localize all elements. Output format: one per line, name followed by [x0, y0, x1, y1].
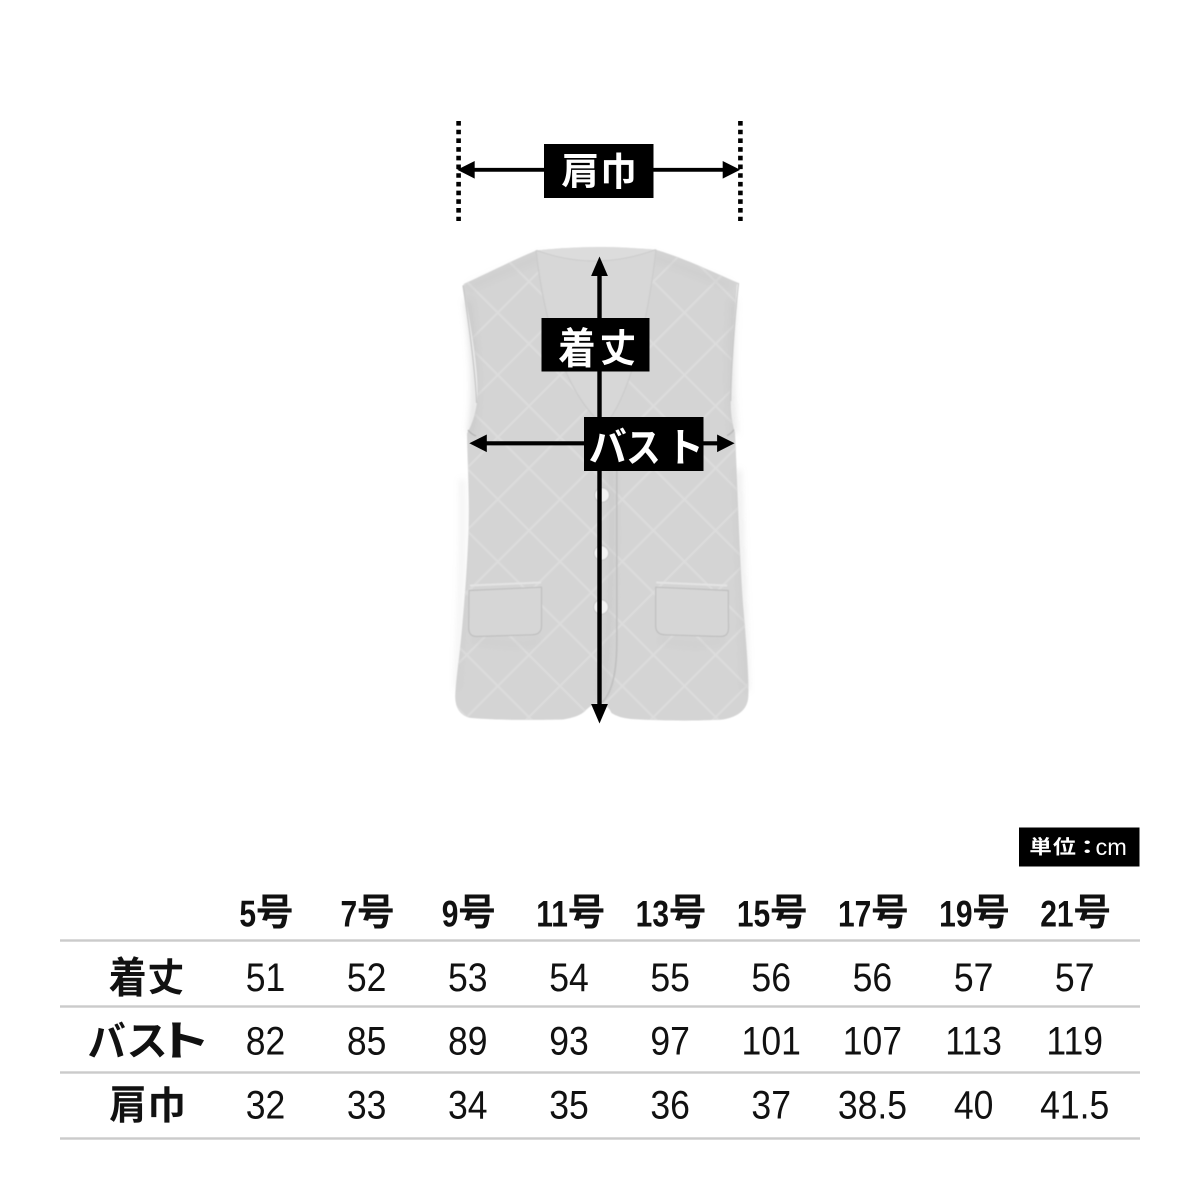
svg-text:15: 15: [737, 893, 770, 935]
svg-text:82: 82: [246, 1019, 286, 1063]
svg-text:54: 54: [549, 955, 589, 999]
svg-text:55: 55: [650, 955, 690, 999]
svg-text:119: 119: [1046, 1019, 1103, 1063]
svg-text:19: 19: [939, 893, 972, 935]
svg-text:107: 107: [843, 1019, 902, 1063]
svg-text:5: 5: [239, 893, 256, 935]
svg-text:113: 113: [945, 1019, 1002, 1063]
svg-text:35: 35: [549, 1083, 589, 1127]
svg-text:40: 40: [954, 1083, 994, 1127]
svg-text:9: 9: [442, 893, 459, 935]
svg-text:51: 51: [246, 955, 286, 999]
svg-text:85: 85: [347, 1019, 387, 1063]
svg-text:53: 53: [448, 955, 488, 999]
svg-text:52: 52: [347, 955, 387, 999]
svg-text:32: 32: [246, 1083, 286, 1127]
svg-text:11: 11: [536, 893, 568, 935]
svg-text:34: 34: [448, 1083, 488, 1127]
svg-text:41.5: 41.5: [1040, 1083, 1109, 1127]
svg-text:97: 97: [650, 1019, 690, 1063]
svg-text:cm: cm: [1096, 834, 1127, 860]
svg-text:57: 57: [1055, 955, 1095, 999]
svg-text:13: 13: [636, 893, 669, 935]
svg-text:101: 101: [742, 1019, 801, 1063]
svg-text:38.5: 38.5: [838, 1083, 907, 1127]
svg-text:7: 7: [341, 893, 358, 935]
svg-text:56: 56: [751, 955, 791, 999]
svg-text:89: 89: [448, 1019, 488, 1063]
svg-text:37: 37: [751, 1083, 791, 1127]
svg-text:17: 17: [838, 893, 871, 935]
svg-text:56: 56: [853, 955, 893, 999]
svg-text:36: 36: [650, 1083, 690, 1127]
svg-text:57: 57: [954, 955, 994, 999]
svg-text:93: 93: [549, 1019, 589, 1063]
svg-text:33: 33: [347, 1083, 387, 1127]
svg-text:21: 21: [1040, 893, 1073, 935]
